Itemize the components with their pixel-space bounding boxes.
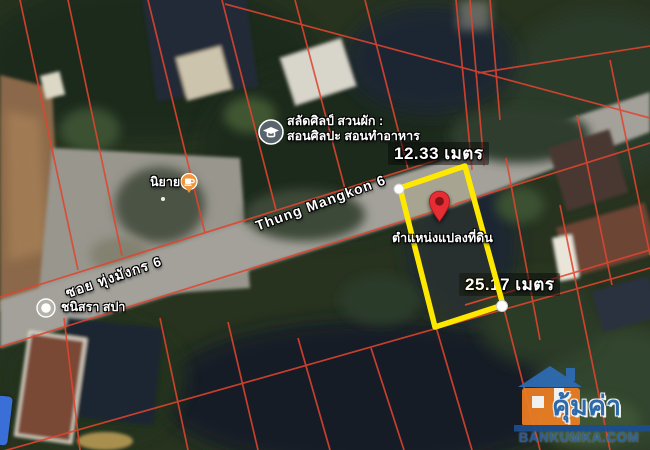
graduation-cap-icon[interactable]: [258, 119, 284, 145]
poi-cafe-name[interactable]: นิยาย: [150, 176, 180, 190]
poi-education-name-line2[interactable]: สอนศิลปะ สอนทำอาหาร: [287, 130, 420, 144]
satellite-map[interactable]: 12.33 เมตร 25.17 เมตร ตำแหน่งแปลงที่ดิน …: [0, 0, 650, 450]
watermark-brand-text: คุ้มค่า: [552, 384, 621, 427]
watermark: คุ้มค่า BANKUMKA.COM: [502, 360, 650, 450]
parcel-corner-dot: [394, 184, 404, 194]
watermark-site-text: BANKUMKA.COM: [508, 430, 650, 445]
location-pin-icon[interactable]: [428, 190, 451, 223]
poi-education-name-line1[interactable]: สลัดศิลป์ สวนผัก :: [287, 115, 383, 129]
poi-dot: [161, 197, 165, 201]
parcel-corner-dot: [497, 301, 508, 312]
generic-poi-icon[interactable]: [36, 298, 56, 318]
poi-spa-name[interactable]: ชนิสรา สปา: [61, 301, 125, 315]
parcel-caption-label: ตำแหน่งแปลงที่ดิน: [392, 228, 493, 248]
cafe-cup-icon[interactable]: [180, 173, 198, 195]
